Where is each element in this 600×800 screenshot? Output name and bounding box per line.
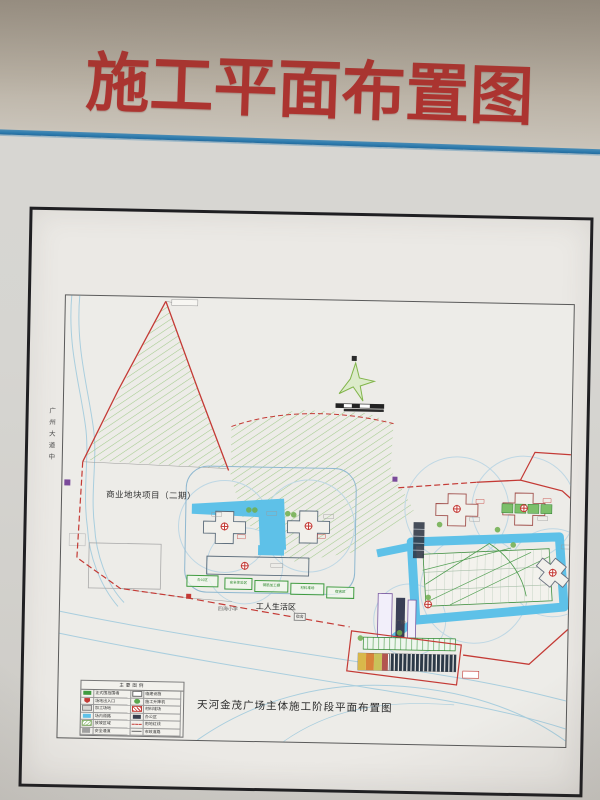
school-label: 四海小学 [218, 605, 238, 612]
workers-area-label: 工人生活区 [256, 601, 296, 613]
legend-symbol-fence-icon [83, 691, 91, 695]
north-arrow-icon [339, 356, 375, 402]
wall-header: 施工平面布置图 [0, 0, 600, 153]
facility-box: 宿舍区 [326, 586, 354, 599]
legend-symbol-red-line-icon [132, 723, 142, 724]
legend-symbol-site-road-icon [83, 714, 91, 718]
legend-symbol-processing-area-icon [82, 705, 92, 711]
legend-symbol-slope-icon [82, 720, 92, 726]
legend-symbol-temp-facility-icon [132, 691, 142, 697]
worker-dorm-containers [347, 631, 480, 686]
poster-frame: 商业地块项目（二期） 工人生活区 四海小学 广场 宿舍 广州大道中 天河金茂广场… [18, 207, 593, 798]
legend-symbol-stockyard-icon [132, 706, 142, 712]
legend-label: 安全通道 [93, 727, 130, 735]
photo-of-poster: 施工平面布置图 [0, 0, 600, 800]
hatched-slope-areas [81, 300, 418, 564]
drawing-sheet: 商业地块项目（二期） 工人生活区 四海小学 广场 宿舍 广州大道中 天河金茂广场… [56, 294, 574, 748]
legend-label: 市政道路 [143, 728, 180, 736]
facility-box: 办公区 [186, 575, 218, 588]
legend-symbol-office-icon [133, 714, 141, 718]
facility-box: 钢筋加工棚 [254, 580, 288, 593]
facility-box: 安全体验区 [224, 577, 252, 590]
dorm-tag-label: 宿舍 [294, 613, 306, 621]
commercial-plot-label: 商业地块项目（二期） [106, 488, 196, 502]
legend-symbol-gate-icon [84, 698, 90, 703]
legend-table: 主要图例 正式围挡围墙 临建设施 场地出入口 施工升降机 加工场地 材料堆场 场… [79, 680, 184, 738]
square-label: 广场 [396, 619, 406, 626]
legend-symbol-hoist-icon [134, 699, 140, 704]
page-title: 施工平面布置图 [84, 31, 535, 138]
road-name-vertical-label: 广州大道中 [45, 407, 56, 465]
legend-symbol-municipal-road-icon [132, 731, 142, 732]
site-plan [57, 295, 573, 747]
podium-grid [422, 546, 553, 608]
legend-symbol-passage-icon [83, 728, 91, 733]
facility-box: 材料堆场 [290, 583, 324, 596]
scale-bar [336, 404, 384, 412]
